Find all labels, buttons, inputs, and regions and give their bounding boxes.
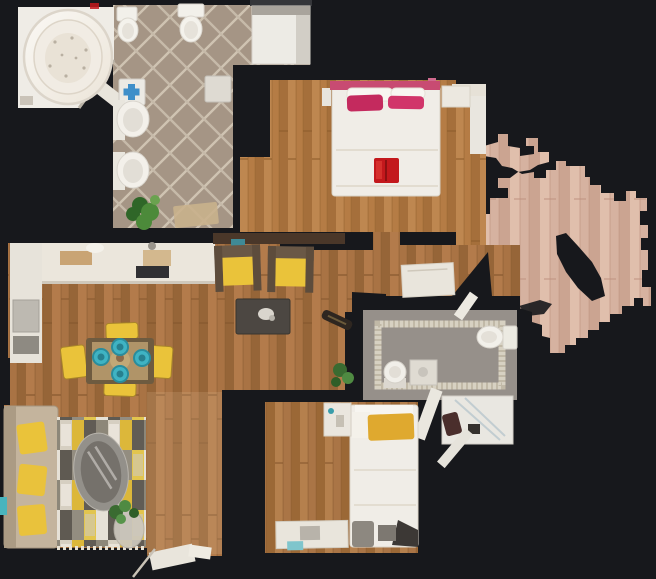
outside-blob-island [563, 166, 585, 179]
sofa [0, 406, 58, 548]
desk-item [300, 526, 320, 540]
cooktop [136, 266, 169, 278]
pink-pillow [388, 96, 424, 110]
armchair-cushion [222, 257, 253, 286]
washer-drum [418, 367, 428, 377]
sofa-back [4, 406, 16, 548]
floorplan-canvas [0, 0, 656, 579]
shower-shade [296, 15, 310, 64]
open-front-door [401, 263, 455, 298]
bath-mat [173, 202, 219, 228]
dining-chair [106, 322, 139, 339]
double-bed [330, 81, 440, 196]
jacuzzi-room [18, 3, 127, 110]
pedestal-sink [384, 361, 406, 388]
toilet [477, 326, 517, 349]
desk [276, 520, 348, 550]
armchair [267, 246, 314, 293]
nightstand [322, 88, 331, 106]
bidet [117, 7, 138, 42]
wall-wedge [352, 292, 386, 312]
wall-band [367, 296, 520, 309]
dining-chair [60, 345, 88, 380]
white-pillow [352, 412, 370, 438]
corridor-light-overlay [147, 392, 222, 554]
teal-item [328, 408, 334, 414]
yellow-pillow [368, 413, 415, 441]
red-wall-item [90, 3, 99, 9]
shower-bar [252, 6, 310, 15]
sofa-cushion [16, 421, 48, 455]
stool [352, 521, 374, 547]
teal-sliver [0, 497, 7, 515]
faucet [148, 242, 156, 250]
counter-item [143, 250, 171, 266]
shower-cabin [441, 396, 513, 444]
teal-paper [287, 541, 303, 550]
toilet [178, 4, 204, 42]
cutting-board [60, 251, 92, 265]
cabinet [205, 76, 231, 102]
kitchen-appliance [13, 336, 39, 354]
sofa-cushion [17, 504, 48, 536]
red-breakfast-tray [374, 158, 399, 183]
nightstand [442, 86, 470, 107]
shower-wall-top [250, 0, 312, 6]
jacuzzi-tub-basin [45, 33, 91, 83]
wall-strip-white [470, 96, 486, 154]
coffee-table [236, 299, 290, 334]
kitchen-sink [13, 300, 39, 332]
wall-notch [0, 358, 10, 405]
sofa-cushion [17, 464, 48, 497]
teal-wall-item [231, 239, 245, 246]
gray-patch [378, 525, 396, 541]
armchair [214, 244, 262, 292]
pink-pillow [347, 94, 384, 111]
nightstand [324, 403, 351, 436]
counter-item [86, 243, 104, 253]
corner-shadow [20, 96, 33, 105]
